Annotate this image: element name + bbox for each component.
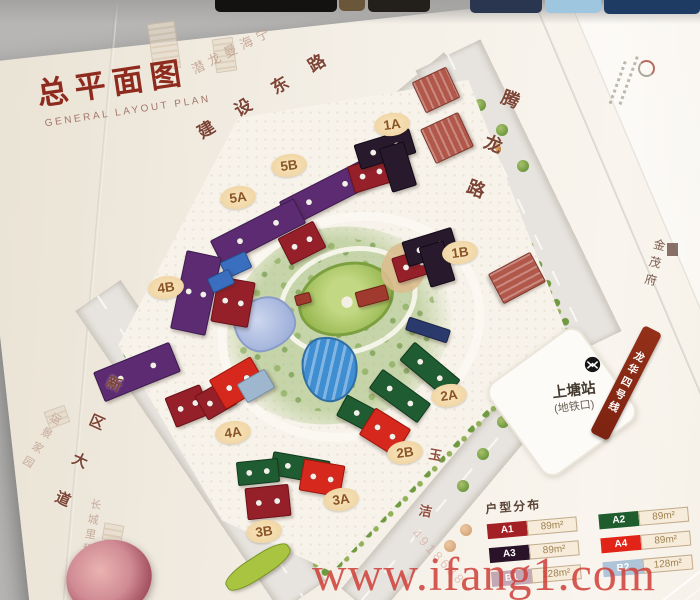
site-watermark: www.ifang1.com <box>312 547 656 600</box>
tree-icon <box>457 480 469 492</box>
tree-icon <box>460 524 472 536</box>
background-object <box>339 0 365 11</box>
developer-logo-icon <box>638 60 655 77</box>
building-sketch-icon <box>667 243 678 256</box>
metro-logo-icon <box>584 356 601 373</box>
legend-swatch-a1: A1 <box>487 521 528 539</box>
legend-area-a1: 89m² <box>527 516 578 535</box>
legend-swatch-a2: A2 <box>598 511 639 529</box>
tree-icon <box>517 160 529 172</box>
legend-area-a2: 89m² <box>638 507 689 526</box>
building-block <box>236 458 280 486</box>
background-object <box>368 0 430 12</box>
legend-item-a2: A2 89m² <box>598 506 695 529</box>
building-block <box>244 484 291 520</box>
photo-of-site-plan: 总平面图 GENERAL LAYOUT PLAN <box>0 0 700 600</box>
tree-icon <box>477 448 489 460</box>
legend-item-a1: A1 89m² <box>487 516 584 539</box>
background-object <box>215 0 337 12</box>
